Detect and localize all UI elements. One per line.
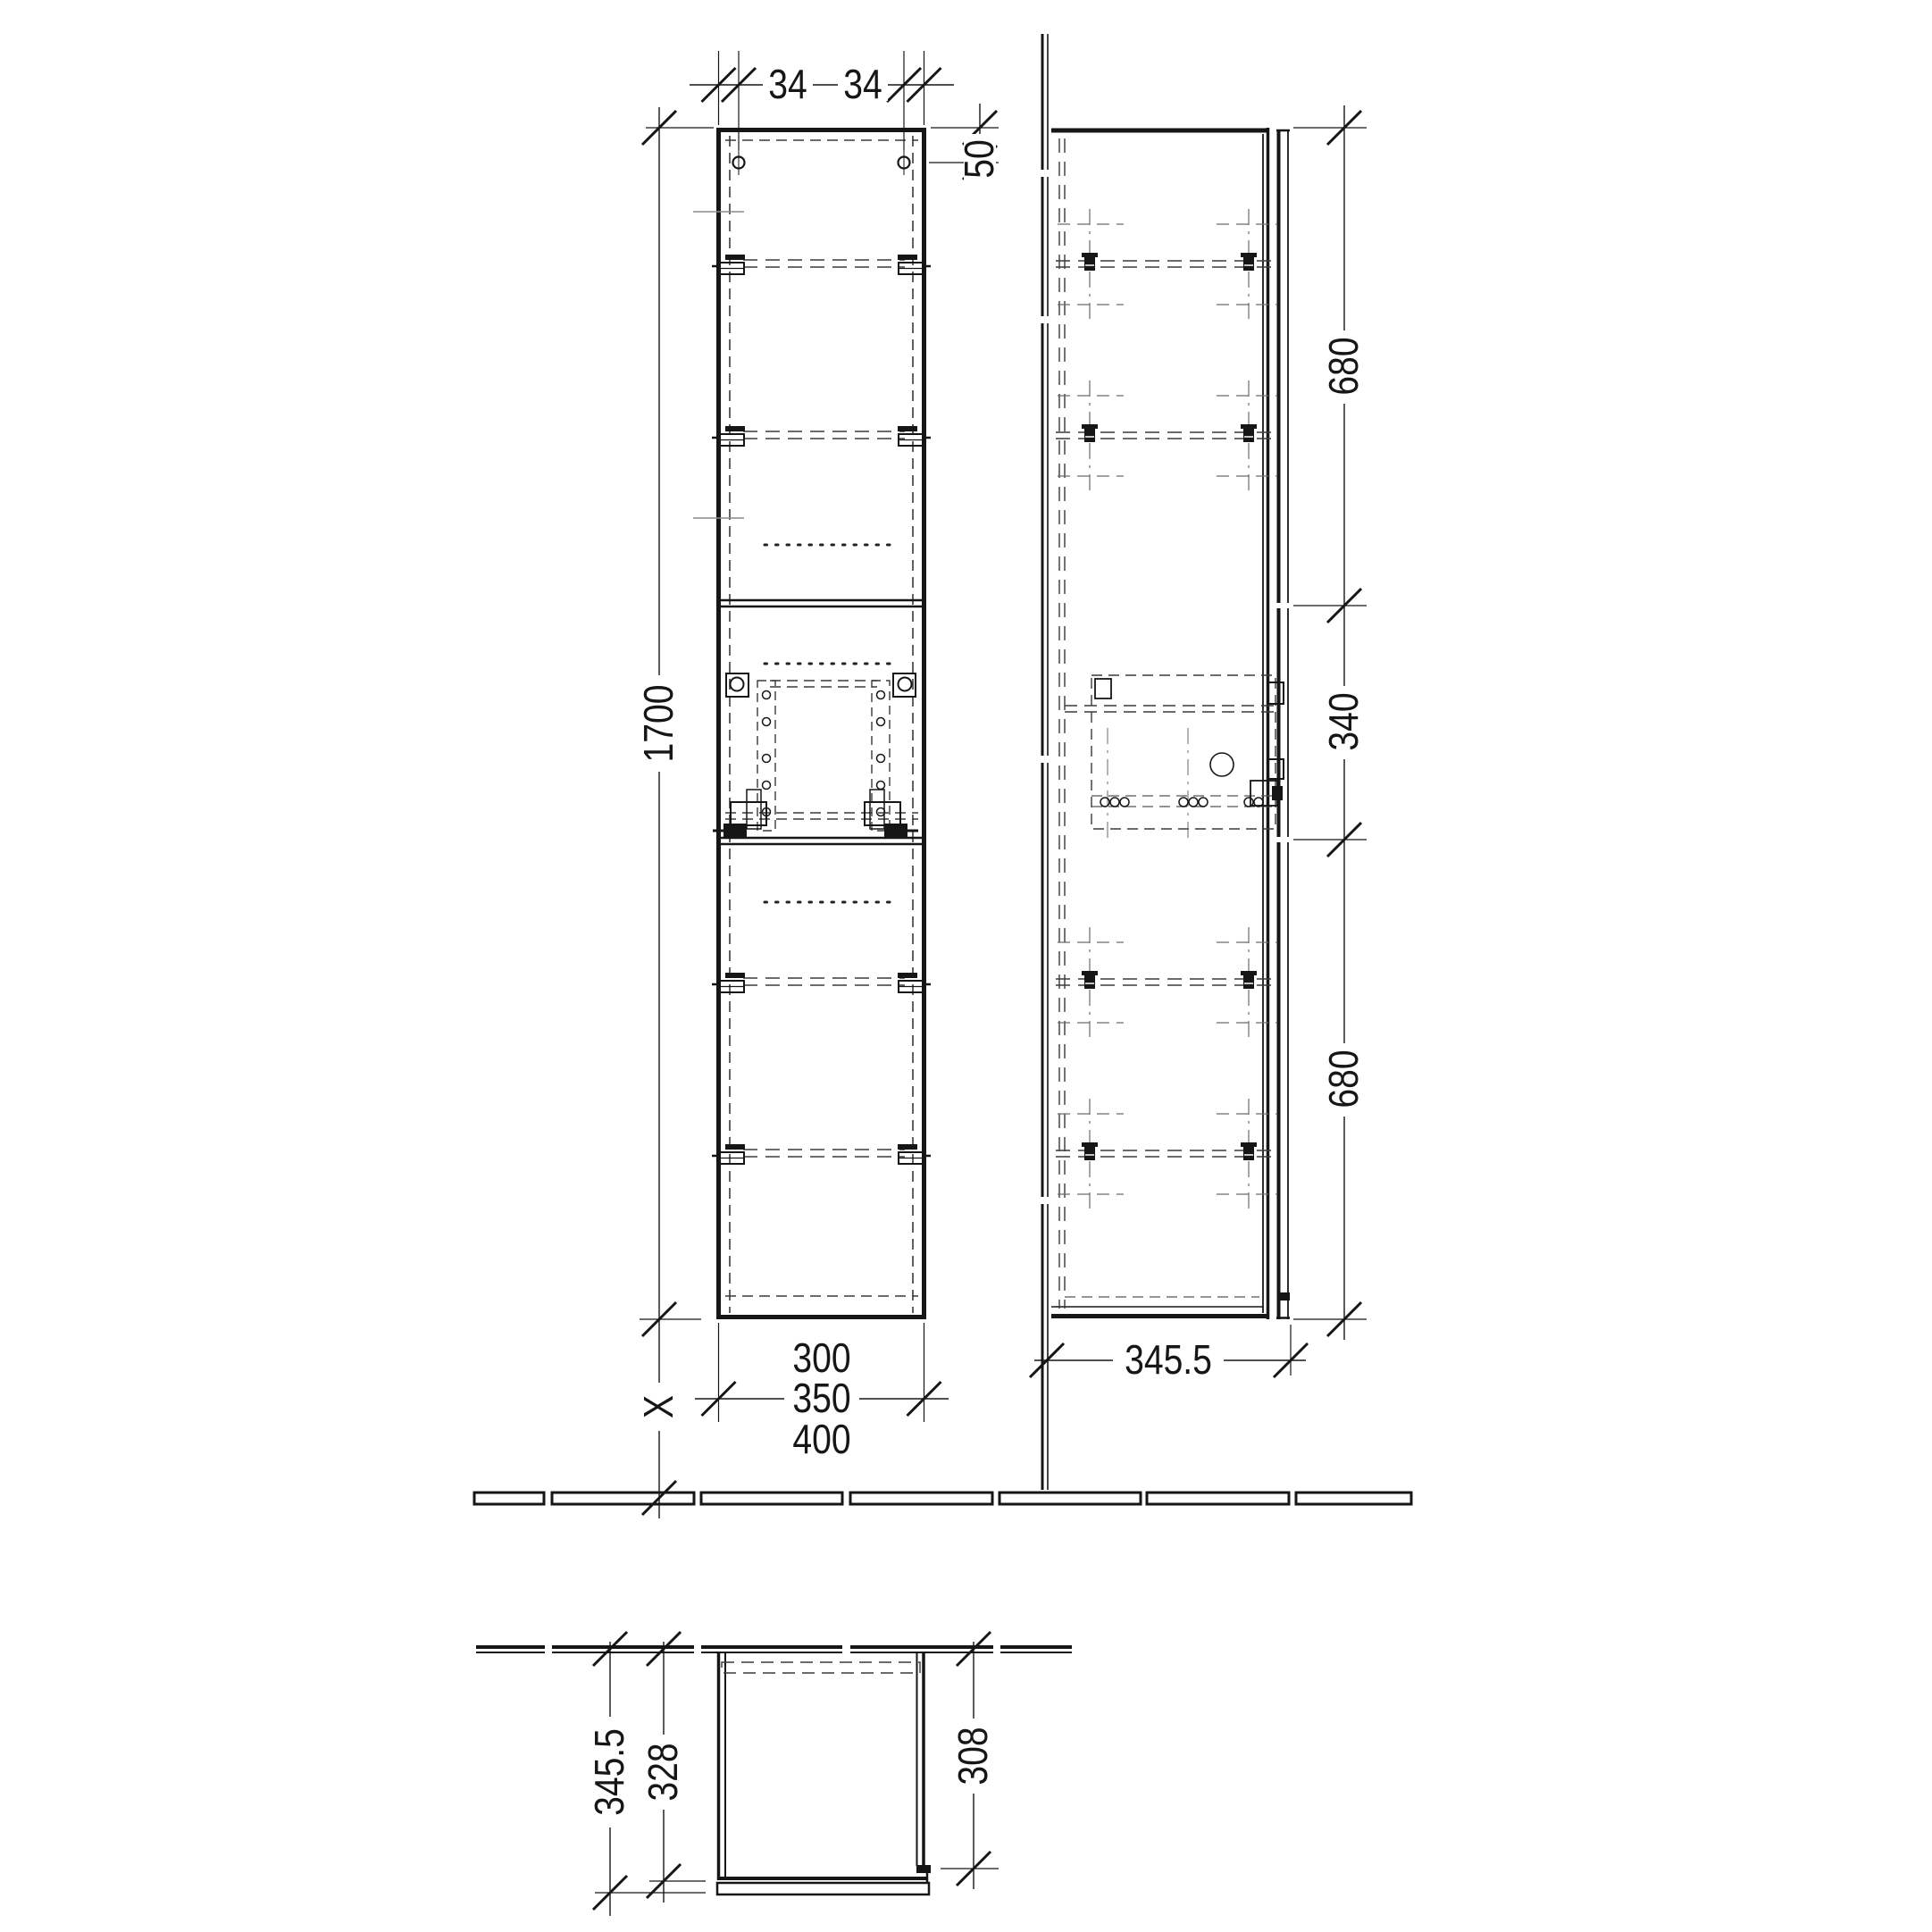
side-shelf-4 [1056, 1099, 1277, 1209]
side-shelf-3 [1056, 927, 1277, 1038]
dim-top-right-inset: 34 [843, 62, 882, 108]
dim-width-medium: 350 [792, 1376, 850, 1422]
dim-floor-clearance: X [636, 1395, 682, 1418]
side-section-view [1042, 34, 1290, 1490]
dim-width-large: 400 [792, 1417, 850, 1463]
front-elevation-view [693, 130, 931, 1317]
dim-top-left-inset: 34 [768, 62, 807, 108]
side-shelf-1 [1056, 209, 1277, 320]
plan-door-hinge-step [916, 1865, 931, 1873]
drawer-side-mechanism [1065, 675, 1284, 840]
door-gap-upper [718, 600, 924, 606]
back-panel [1059, 138, 1065, 1309]
front-shelf-3 [712, 973, 931, 992]
dim-side-depth: 345.5 [1125, 1337, 1212, 1384]
dim-plan-depth-clear: 308 [950, 1727, 997, 1785]
dim-width-small: 300 [792, 1335, 850, 1382]
front-shelf-1 [712, 255, 931, 274]
floor-line [474, 1493, 1411, 1504]
dim-hole-top-offset: 50 [957, 139, 1003, 178]
mounting-holes [733, 150, 910, 175]
door-profile [1276, 130, 1290, 1319]
front-cabinet-outline [719, 130, 924, 1317]
drawer-runners-front [713, 673, 918, 838]
side-shelf-2 [1056, 381, 1277, 491]
dim-side-middle-section: 340 [1321, 692, 1367, 750]
dim-side-top-section: 680 [1321, 337, 1367, 395]
plan-door-panel [717, 1883, 929, 1894]
cabinet-dimension-drawing: 34 34 50 1700 X 300 350 400 680 340 680 … [0, 0, 1932, 1932]
dim-cabinet-height: 1700 [636, 685, 682, 763]
plan-shelf-dashed [722, 1662, 920, 1673]
technical-drawing: 34 34 50 1700 X 300 350 400 680 340 680 … [0, 0, 1932, 1932]
dim-plan-depth-carcass: 328 [640, 1743, 687, 1801]
plan-wall-line [476, 1647, 1072, 1652]
dimension-labels: 34 34 50 1700 X 300 350 400 680 340 680 … [587, 62, 1367, 1827]
front-shelf-4 [712, 1144, 931, 1164]
front-shelf-2 [712, 426, 931, 446]
door-gap-lower [718, 838, 924, 844]
dim-side-bottom-section: 680 [1321, 1050, 1367, 1108]
wall-line [1042, 34, 1048, 1490]
dim-plan-depth-overall: 345.5 [587, 1728, 633, 1816]
